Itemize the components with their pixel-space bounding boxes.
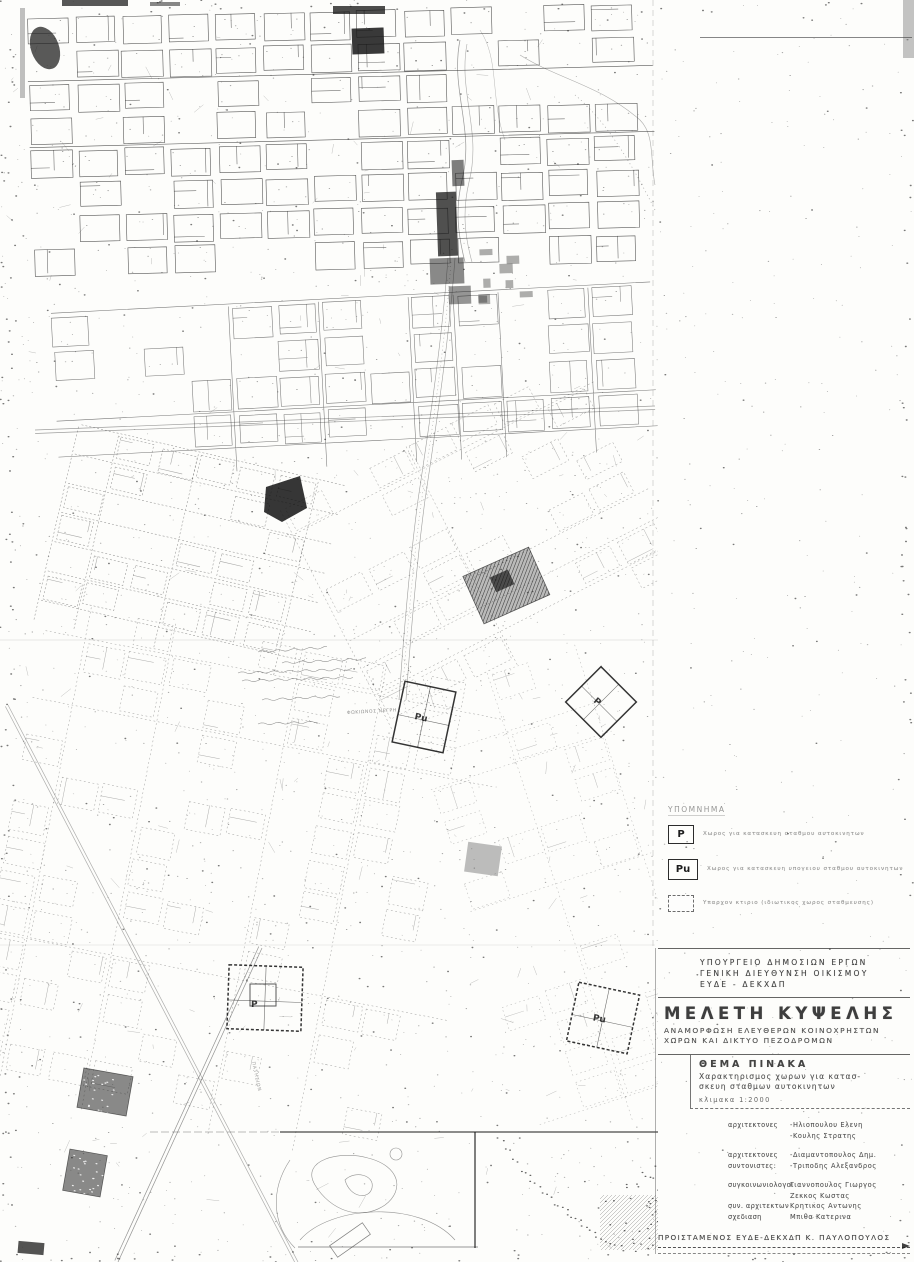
- credit-role: συγκοινωνιολογοι: [728, 1180, 790, 1191]
- credit-name: Μπιθα Κατερινα: [790, 1212, 851, 1223]
- study-subtitle: ΑΝΑΜΟΡΦΩΣΗ ΕΛΕΥΘΕΡΩΝ ΚΟΙΝΟΧΡΗΣΤΩΝ ΧΩΡΩΝ …: [664, 1026, 910, 1046]
- credit-role: σχεδιαση: [728, 1212, 790, 1223]
- credit-name: Ζεκκος Κωστας: [790, 1191, 850, 1202]
- legend-title: ΥΠΟΜΝΗΜΑ: [668, 805, 725, 816]
- agency-line: ΕΥΔΕ - ΔΕΚΧΔΠ: [700, 979, 910, 990]
- credit-row: συν. αρχιτεκτων Κρητικος Αντωνης: [728, 1201, 910, 1212]
- map-legend: ΥΠΟΜΝΗΜΑ P Χωρος για κατασκευη σταθμου α…: [668, 797, 906, 927]
- agency-line: ΥΠΟΥΡΓΕΙΟ ΔΗΜΟΣΙΩΝ ΕΡΓΩΝ: [700, 957, 910, 968]
- street-label-fokionos-negri: ΦΩΚΙΩΝΟΣ ΝΕΓΡΗ: [347, 707, 397, 716]
- credit-role: αρχιτεκτονες: [728, 1150, 790, 1161]
- street-label-patision: ΠΑΤΗΣΙΩΝ: [250, 1061, 262, 1092]
- sheet-theme-heading: ΘΕΜΑ ΠΙΝΑΚΑ: [699, 1059, 910, 1070]
- marker-p-2: P: [251, 1000, 258, 1010]
- credit-role: αρχιτεκτονες: [728, 1120, 790, 1131]
- supervisor-line: ΠΡΟΙΣΤΑΜΕΝΟΣ ΕΥΔΕ-ΔΕΚΧΔΠ Κ. ΠΑΥΛΟΠΟΥΛΟΣ: [658, 1233, 910, 1242]
- credit-role: συν. αρχιτεκτων: [728, 1201, 790, 1212]
- credit-name: -Ηλιοπουλου Ελενη: [790, 1120, 863, 1131]
- credit-name: Κρητικος Αντωνης: [790, 1201, 862, 1212]
- legend-item-existing-building: Υπαρχον κτιριο (ιδιωτικος χωρος σταθμευσ…: [668, 895, 906, 912]
- credit-name: -Διαμαντοπουλος Δημ.: [790, 1150, 876, 1161]
- parking-symbol: P: [668, 825, 694, 844]
- credit-row: σχεδιαση Μπιθα Κατερινα: [728, 1212, 910, 1223]
- study-section: ΜΕΛΕΤΗ ΚΥΨΕΛΗΣ ΑΝΑΜΟΡΦΩΣΗ ΕΛΕΥΘΕΡΩΝ ΚΟΙΝ…: [658, 998, 910, 1054]
- underground-parking-symbol: Pu: [668, 859, 698, 880]
- legend-item-label: Χωρος για κατασκευη υπογειου σταθμου αυτ…: [707, 866, 903, 873]
- existing-building-symbol: [668, 895, 694, 912]
- sheet-subject-line: Χαρακτηρισμος χωρων για κατασ-: [699, 1072, 910, 1082]
- legend-item-parking: P Χωρος για κατασκευη σταθμου αυτοκινητω…: [668, 825, 906, 844]
- study-subtitle-line: ΧΩΡΩΝ ΚΑΙ ΔΙΚΤΥΟ ΠΕΖΟΔΡΟΜΩΝ: [664, 1036, 910, 1046]
- street-labels: ΦΩΚΙΩΝΟΣ ΝΕΓΡΗ ΠΑΤΗΣΙΩΝ: [250, 707, 397, 1092]
- credit-name: -Κουλης Στρατης: [790, 1131, 856, 1142]
- credit-name: -Τριποδης Αλεξανδρος: [790, 1161, 877, 1172]
- title-block: ΥΠΟΥΡΓΕΙΟ ΔΗΜΟΣΙΩΝ ΕΡΓΩΝ ΓΕΝΙΚΗ ΔΙΕΥΘΥΝΣ…: [655, 948, 910, 1254]
- sheet-subject-line: σκευη σταθμων αυτοκινητων: [699, 1082, 910, 1092]
- credit-row: Ζεκκος Κωστας: [728, 1191, 910, 1202]
- agency-line: ΓΕΝΙΚΗ ΔΙΕΥΘΥΝΣΗ ΟΙΚΙΣΜΟΥ: [700, 968, 910, 979]
- credit-row: αρχιτεκτονες -Διαμαντοπουλος Δημ.: [728, 1150, 910, 1161]
- study-title: ΜΕΛΕΤΗ ΚΥΨΕΛΗΣ: [664, 1004, 910, 1023]
- map-scale: κλιμακα 1:2000: [699, 1096, 910, 1104]
- credit-row: -Κουλης Στρατης: [728, 1131, 910, 1142]
- legend-item-label: Χωρος για κατασκευη σταθμου αυτοκινητων: [703, 831, 865, 838]
- legend-item-underground-parking: Pu Χωρος για κατασκευη υπογειου σταθμου …: [668, 859, 906, 880]
- agency-header: ΥΠΟΥΡΓΕΙΟ ΔΗΜΟΣΙΩΝ ΕΡΓΩΝ ΓΕΝΙΚΗ ΔΙΕΥΘΥΝΣ…: [658, 949, 910, 997]
- marker-pu-2: Pu: [592, 1013, 607, 1025]
- credits-list: αρχιτεκτονες -Ηλιοπουλου Ελενη -Κουλης Σ…: [658, 1120, 910, 1222]
- sheet-subject: Χαρακτηρισμος χωρων για κατασ- σκευη στα…: [699, 1072, 910, 1092]
- credit-row: συγκοινωνιολογοι Γιαννοπουλος Γιωργος: [728, 1180, 910, 1191]
- top-right-rule: [700, 37, 912, 38]
- study-subtitle-line: ΑΝΑΜΟΡΦΩΣΗ ΕΛΕΥΘΕΡΩΝ ΚΟΙΝΟΧΡΗΣΤΩΝ: [664, 1026, 910, 1036]
- credit-name: Γιαννοπουλος Γιωργος: [790, 1180, 877, 1191]
- credit-role: [728, 1131, 790, 1142]
- marker-pu-1: Pu: [414, 712, 429, 724]
- credit-role: [728, 1191, 790, 1202]
- scanned-map-sheet: Pu P P Pu ΦΩΚΙΩΝΟΣ ΝΕΓΡΗ ΠΑΤΗΣΙΩΝ ΥΠΟΜΝΗ…: [0, 0, 914, 1262]
- sheet-theme-box: ΘΕΜΑ ΠΙΝΑΚΑ Χαρακτηρισμος χωρων για κατα…: [690, 1055, 910, 1109]
- parking-markers: Pu P P Pu: [251, 696, 606, 1025]
- credit-row: συντονιστες: -Τριποδης Αλεξανδρος: [728, 1161, 910, 1172]
- credit-role: συντονιστες:: [728, 1161, 790, 1172]
- legend-item-label: Υπαρχον κτιριο (ιδιωτικος χωρος σταθμευσ…: [703, 900, 874, 907]
- credit-row: αρχιτεκτονες -Ηλιοπουλου Ελενη: [728, 1120, 910, 1131]
- title-block-end-rule: [658, 1247, 910, 1254]
- arrow-icon: [902, 1243, 910, 1249]
